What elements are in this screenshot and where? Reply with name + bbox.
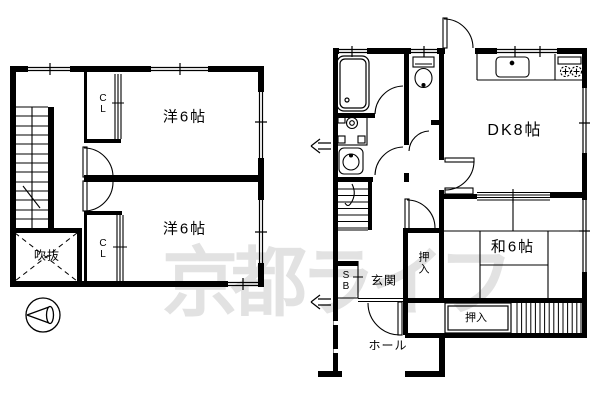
hall-label: ホール [368, 339, 407, 352]
room-label-western1: 洋6帖 [163, 110, 207, 127]
room-label-western2: 洋6帖 [163, 222, 207, 239]
washbasin-icon [339, 148, 363, 174]
entrance-label: 玄関 [371, 274, 397, 287]
first-floor-walls [318, 48, 587, 377]
oshiire-label-1: 押 入 [419, 252, 430, 277]
staircase-1f [335, 184, 368, 230]
floorplan-page: 京都ライフ [0, 0, 600, 400]
floorplan-drawing [0, 0, 600, 400]
toilet-icon [413, 57, 434, 88]
void-label: 吹抜 [34, 249, 60, 262]
shoebox-label: S B [343, 270, 350, 292]
closet-label-1: C L [99, 93, 106, 115]
staircase-2f [16, 107, 48, 228]
direction-arrow-icon-upper [311, 139, 331, 153]
veranda-hatch [517, 303, 581, 333]
kitchen-counter [477, 54, 582, 80]
bathtub-icon [337, 56, 369, 111]
compass-icon [26, 298, 60, 332]
oshiire-label-2: 押入 [465, 312, 487, 324]
room-label-japanese: 和6帖 [491, 240, 535, 257]
direction-arrow-icon-lower [311, 295, 331, 309]
closet-label-2: C L [99, 238, 106, 260]
room-label-dk: DK8帖 [487, 122, 542, 140]
washer-pan-icon [336, 114, 367, 145]
